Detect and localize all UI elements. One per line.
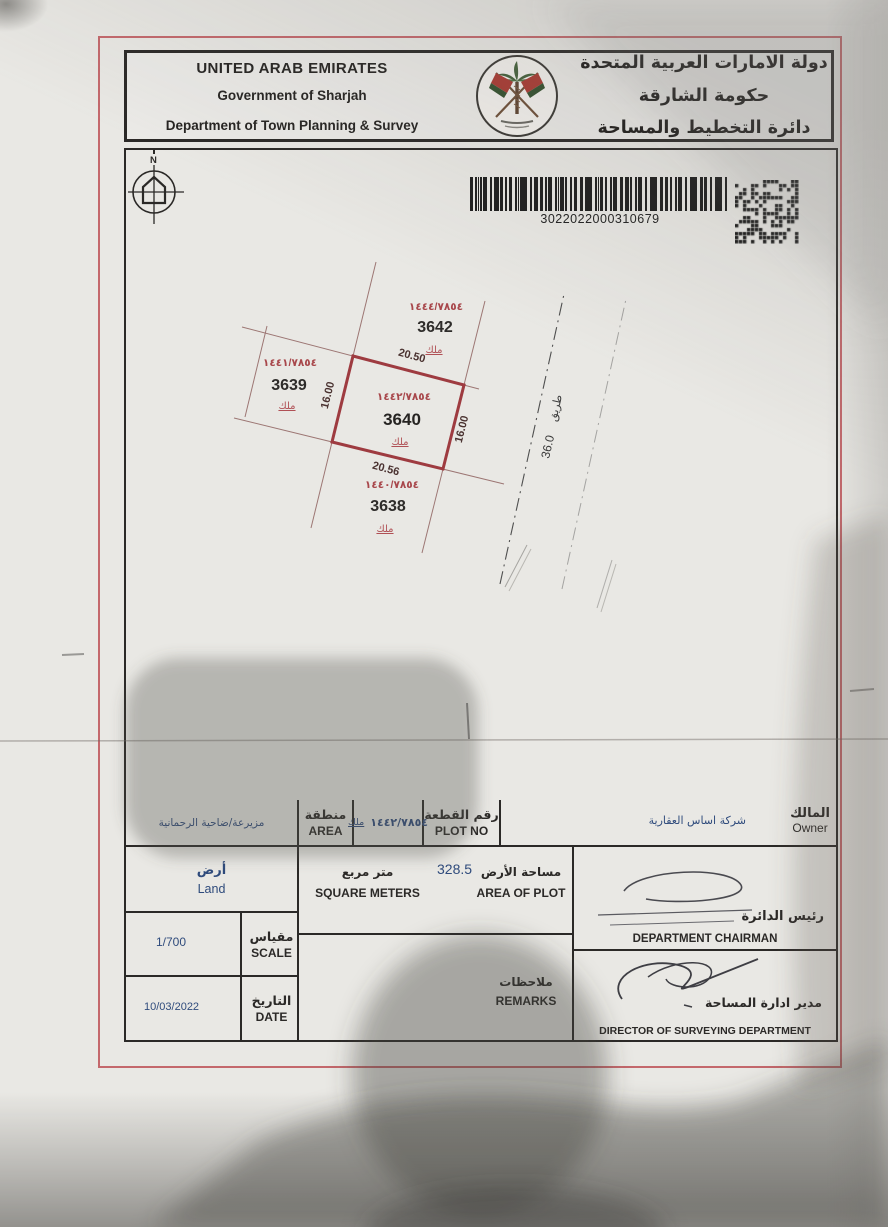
road-name: طريق: [546, 393, 566, 423]
plot-ref: ١٤٤٤/٧٨٥٤: [409, 301, 463, 313]
chairman-signature: [584, 855, 784, 945]
area-of-plot-unit: متر مربع SQUARE METERS: [305, 865, 430, 900]
road-lines: [500, 294, 626, 589]
content-box: N: [124, 148, 838, 1042]
plot-number: 3639: [271, 377, 307, 394]
dim-top: 20.50: [397, 347, 427, 366]
plot-tenure: ملك: [376, 524, 393, 535]
plot-no-label-en: PLOT NO: [435, 824, 488, 838]
details-table: مزيرعة/ضاحية الرحمانية منطقة AREA ملك ١٤…: [126, 800, 836, 1040]
survey-plan-page: UNITED ARAB EMIRATES Government of Sharj…: [98, 36, 842, 1068]
plot-no-tenure: ملك: [348, 817, 364, 828]
body-shadow: [150, 1040, 888, 1227]
owner-label-en: Owner: [790, 821, 830, 835]
department-title-ar: دائرة التخطيط والمساحة: [577, 112, 831, 144]
land-type-en: Land: [198, 882, 226, 896]
area-label-en: AREA: [308, 824, 342, 838]
qr-code: [735, 180, 799, 244]
chairman-label-en: DEPARTMENT CHAIRMAN: [574, 933, 836, 945]
unit-ar: متر مربع: [305, 865, 430, 879]
dim-bottom: 20.56: [371, 460, 401, 479]
date-header: التاريخ DATE: [240, 977, 301, 1040]
country-title: UNITED ARAB EMIRATES: [127, 60, 457, 77]
plot-number: 3640: [383, 410, 421, 429]
date-cell: 10/03/2022 التاريخ DATE: [126, 977, 299, 1040]
land-type-ar: أرض: [197, 863, 226, 878]
director-label-en: DIRECTOR OF SURVEYING DEPARTMENT: [574, 1025, 836, 1037]
remarks-label-ar: ملاحظات: [486, 975, 566, 989]
plot-map-svg: N: [126, 150, 836, 800]
sharjah-emblem-icon: [473, 52, 561, 140]
boundary-lines: [234, 262, 504, 553]
plot-ref: ١٤٤٢/٧٨٥٤: [377, 391, 431, 403]
owner-value: شركة اساس العقارية: [649, 814, 746, 827]
area-of-plot-cell: متر مربع SQUARE METERS 328.5 مساحة الأرض…: [299, 847, 574, 935]
scale-label-en: SCALE: [251, 946, 292, 960]
scale-value: 1/700: [156, 935, 186, 949]
area-of-plot-label-ar: مساحة الأرض: [476, 865, 566, 879]
owner-label-ar: المالك: [790, 806, 830, 821]
remarks-label-en: REMARKS: [486, 994, 566, 1008]
road-width: 36.0: [538, 433, 557, 459]
land-type-cell: أرض Land: [126, 847, 299, 913]
date-label-en: DATE: [256, 1010, 288, 1024]
document-photo: UNITED ARAB EMIRATES Government of Sharj…: [0, 0, 888, 1227]
director-label-ar: مدير ادارة المساحة: [705, 995, 822, 1010]
margin-tick-left: [62, 654, 84, 655]
remarks-header: ملاحظات REMARKS: [486, 975, 566, 1008]
director-cell: مدير ادارة المساحة DIRECTOR OF SURVEYING…: [574, 951, 836, 1040]
area-header-cell: منطقة AREA: [299, 800, 354, 847]
barcode: [470, 177, 730, 211]
plot-no-header-cell: رقم القطعة PLOT NO: [424, 800, 501, 847]
margin-tick-right: [850, 689, 874, 691]
plot-number: 3642: [417, 319, 453, 336]
plot-3639-labels: ١٤٤١/٧٨٥٤ 3639 ملك: [263, 357, 317, 412]
plot-no-label-ar: رقم القطعة: [424, 807, 498, 822]
owner-cell: شركة اساس العقارية المالك Owner: [501, 800, 836, 847]
header-arabic: دولة الامارات العربية المتحدة حكومة الشا…: [577, 47, 831, 144]
compass-n-label: N: [150, 155, 157, 166]
plot-ref: ١٤٤١/٧٨٥٤: [263, 357, 317, 369]
plot-3638-labels: ١٤٤٠/٧٨٥٤ 3638 ملك: [365, 479, 419, 535]
government-title: Government of Sharjah: [127, 88, 457, 103]
bottom-blob-shadow: [365, 1187, 665, 1227]
header: UNITED ARAB EMIRATES Government of Sharj…: [124, 50, 834, 142]
country-title-ar: دولة الامارات العربية المتحدة: [577, 47, 831, 79]
barcode-number: 3022022000310679: [470, 212, 730, 226]
area-of-plot-value: 328.5: [437, 861, 472, 877]
owner-header: المالك Owner: [790, 806, 830, 835]
plot-ref: ١٤٤٠/٧٨٥٤: [365, 479, 419, 491]
area-of-plot-header: مساحة الأرض AREA OF PLOT: [476, 865, 566, 900]
plot-no-value-cell: ملك ١٤٤٢/٧٨٥٤: [354, 800, 424, 847]
scale-cell: 1/700 مقياس SCALE: [126, 913, 299, 977]
paper-scratches: [509, 549, 616, 612]
department-title: Department of Town Planning & Survey: [127, 118, 457, 133]
plot-tenure: ملك: [391, 437, 408, 448]
header-english: UNITED ARAB EMIRATES Government of Sharj…: [127, 60, 457, 133]
area-label-ar: منطقة: [305, 807, 347, 822]
dim-left: 16.00: [319, 380, 337, 410]
date-value: 10/03/2022: [144, 1001, 199, 1013]
area-of-plot-label-en: AREA OF PLOT: [476, 886, 566, 900]
plot-tenure: ملك: [425, 345, 442, 356]
chairman-label-ar: رئيس الدائرة: [741, 909, 824, 924]
scale-label-ar: مقياس: [250, 929, 294, 944]
area-value: مزيرعة/ضاحية الرحمانية: [159, 817, 265, 829]
remarks-cell: ملاحظات REMARKS: [299, 935, 574, 1040]
date-label-ar: التاريخ: [252, 993, 292, 1008]
chairman-cell: رئيس الدائرة DEPARTMENT CHAIRMAN: [574, 847, 836, 951]
government-title-ar: حكومة الشارقة: [577, 80, 831, 112]
plot-no-value: ١٤٤٢/٧٨٥٤: [370, 816, 428, 829]
scale-header: مقياس SCALE: [240, 913, 301, 975]
plot-map: N: [126, 150, 836, 800]
plot-number: 3638: [370, 498, 406, 515]
plot-3642-labels: ١٤٤٤/٧٨٥٤ 3642 ملك: [409, 301, 463, 356]
plot-tenure: ملك: [278, 401, 295, 412]
road-label: 36.0 طريق: [538, 393, 566, 460]
north-compass-icon: N: [128, 150, 184, 224]
unit-en: SQUARE METERS: [305, 886, 430, 900]
area-value-cell: مزيرعة/ضاحية الرحمانية: [126, 800, 299, 847]
plot-3640-labels: ١٤٤٢/٧٨٥٤ 3640 ملك: [377, 391, 431, 448]
